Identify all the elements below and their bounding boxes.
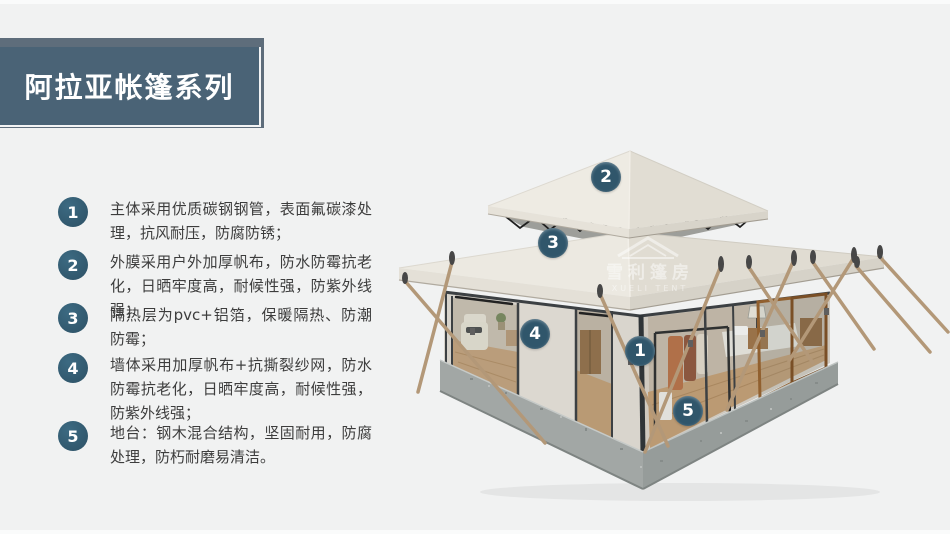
feature-item-3: 3 隔热层为pvc+铝箔，保暖隔热、防潮防霉；	[58, 303, 378, 351]
callout-badge-5: 5	[673, 396, 703, 426]
pole-finial	[746, 255, 752, 269]
feature-4-number-badge: 4	[58, 353, 88, 383]
feature-5-text: 地台：钢木混合结构，坚固耐用，防腐处理，防朽耐磨易清洁。	[110, 421, 372, 469]
feature-5-number-badge: 5	[58, 421, 88, 451]
left-door-interior	[576, 308, 612, 439]
slide-canvas: 雪利篷房 XUELI TENT	[0, 0, 950, 534]
pole-joint	[688, 340, 693, 347]
feature-4-text: 墙体采用加厚帆布+抗撕裂纱网，防水防霉抗老化，日晒牢度高，耐候性强，防紫外线强；	[110, 353, 372, 425]
feature-3-number-badge: 3	[58, 303, 88, 333]
feature-item-4: 4 墙体采用加厚帆布+抗撕裂纱网，防水防霉抗老化，日晒牢度高，耐候性强，防紫外线…	[58, 353, 378, 425]
callout-badge-1: 1	[625, 336, 655, 366]
feature-item-5: 5 地台：钢木混合结构，坚固耐用，防腐处理，防朽耐磨易清洁。	[58, 421, 378, 469]
pole-finial	[810, 250, 816, 264]
feature-3-text: 隔热层为pvc+铝箔，保暖隔热、防潮防霉；	[110, 303, 372, 351]
feature-1-text: 主体采用优质碳钢钢管，表面氟碳漆处理，抗风耐压，防腐防锈；	[110, 197, 372, 245]
pole-finial	[402, 272, 408, 284]
watermark-subtext: XUELI TENT	[612, 284, 689, 293]
pole-joint	[760, 330, 765, 337]
callout-badge-2: 2	[591, 162, 621, 192]
page-title: 阿拉亚帐篷系列	[24, 66, 234, 106]
pole-finial	[854, 256, 860, 268]
pole-finial	[449, 251, 455, 265]
pole-finial	[597, 284, 603, 298]
page-edge-bottom	[0, 530, 950, 534]
watermark-text: 雪利篷房	[606, 262, 694, 283]
title-banner: 阿拉亚帐篷系列	[0, 47, 261, 127]
callout-badge-3: 3	[538, 228, 568, 258]
wood-sliding-door	[758, 298, 792, 399]
pole-joint	[824, 308, 829, 315]
callout-badge-4: 4	[520, 319, 550, 349]
ground-shadow	[480, 483, 880, 501]
feature-item-1: 1 主体采用优质碳钢钢管，表面氟碳漆处理，抗风耐压，防腐防锈；	[58, 197, 378, 245]
pole-finial	[877, 245, 883, 259]
pole-finial	[791, 250, 797, 266]
feature-1-number-badge: 1	[58, 197, 88, 227]
pole-joint	[470, 328, 475, 335]
pole-finial	[718, 256, 724, 272]
guy-pole	[879, 256, 948, 332]
feature-2-number-badge: 2	[58, 250, 88, 280]
door-glass	[576, 308, 612, 439]
